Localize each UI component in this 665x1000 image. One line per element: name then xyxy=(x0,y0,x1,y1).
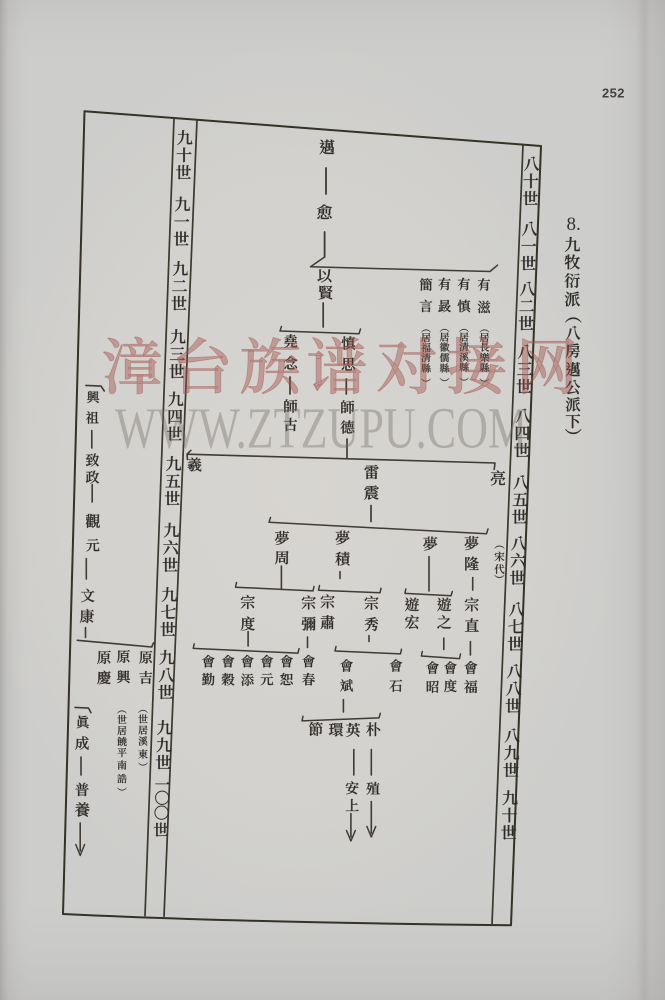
svg-text:8.: 8. xyxy=(567,214,581,235)
svg-text:WWW.ZTZUPU.COM: WWW.ZTZUPU.COM xyxy=(115,397,527,461)
svg-text:252: 252 xyxy=(602,86,625,101)
